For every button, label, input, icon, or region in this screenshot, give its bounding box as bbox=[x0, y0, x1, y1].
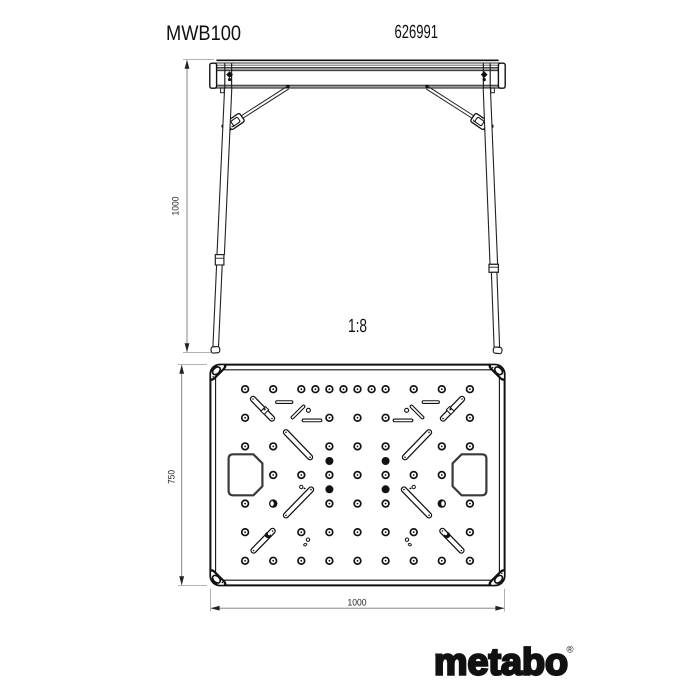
svg-text:MWB100: MWB100 bbox=[166, 22, 241, 45]
svg-text:1:8: 1:8 bbox=[348, 316, 367, 337]
svg-text:®: ® bbox=[567, 645, 574, 656]
svg-text:metabo: metabo bbox=[434, 641, 568, 683]
svg-text:1000: 1000 bbox=[171, 197, 182, 216]
svg-text:1000: 1000 bbox=[348, 597, 367, 608]
svg-text:750: 750 bbox=[167, 470, 178, 484]
svg-text:626991: 626991 bbox=[395, 22, 439, 43]
